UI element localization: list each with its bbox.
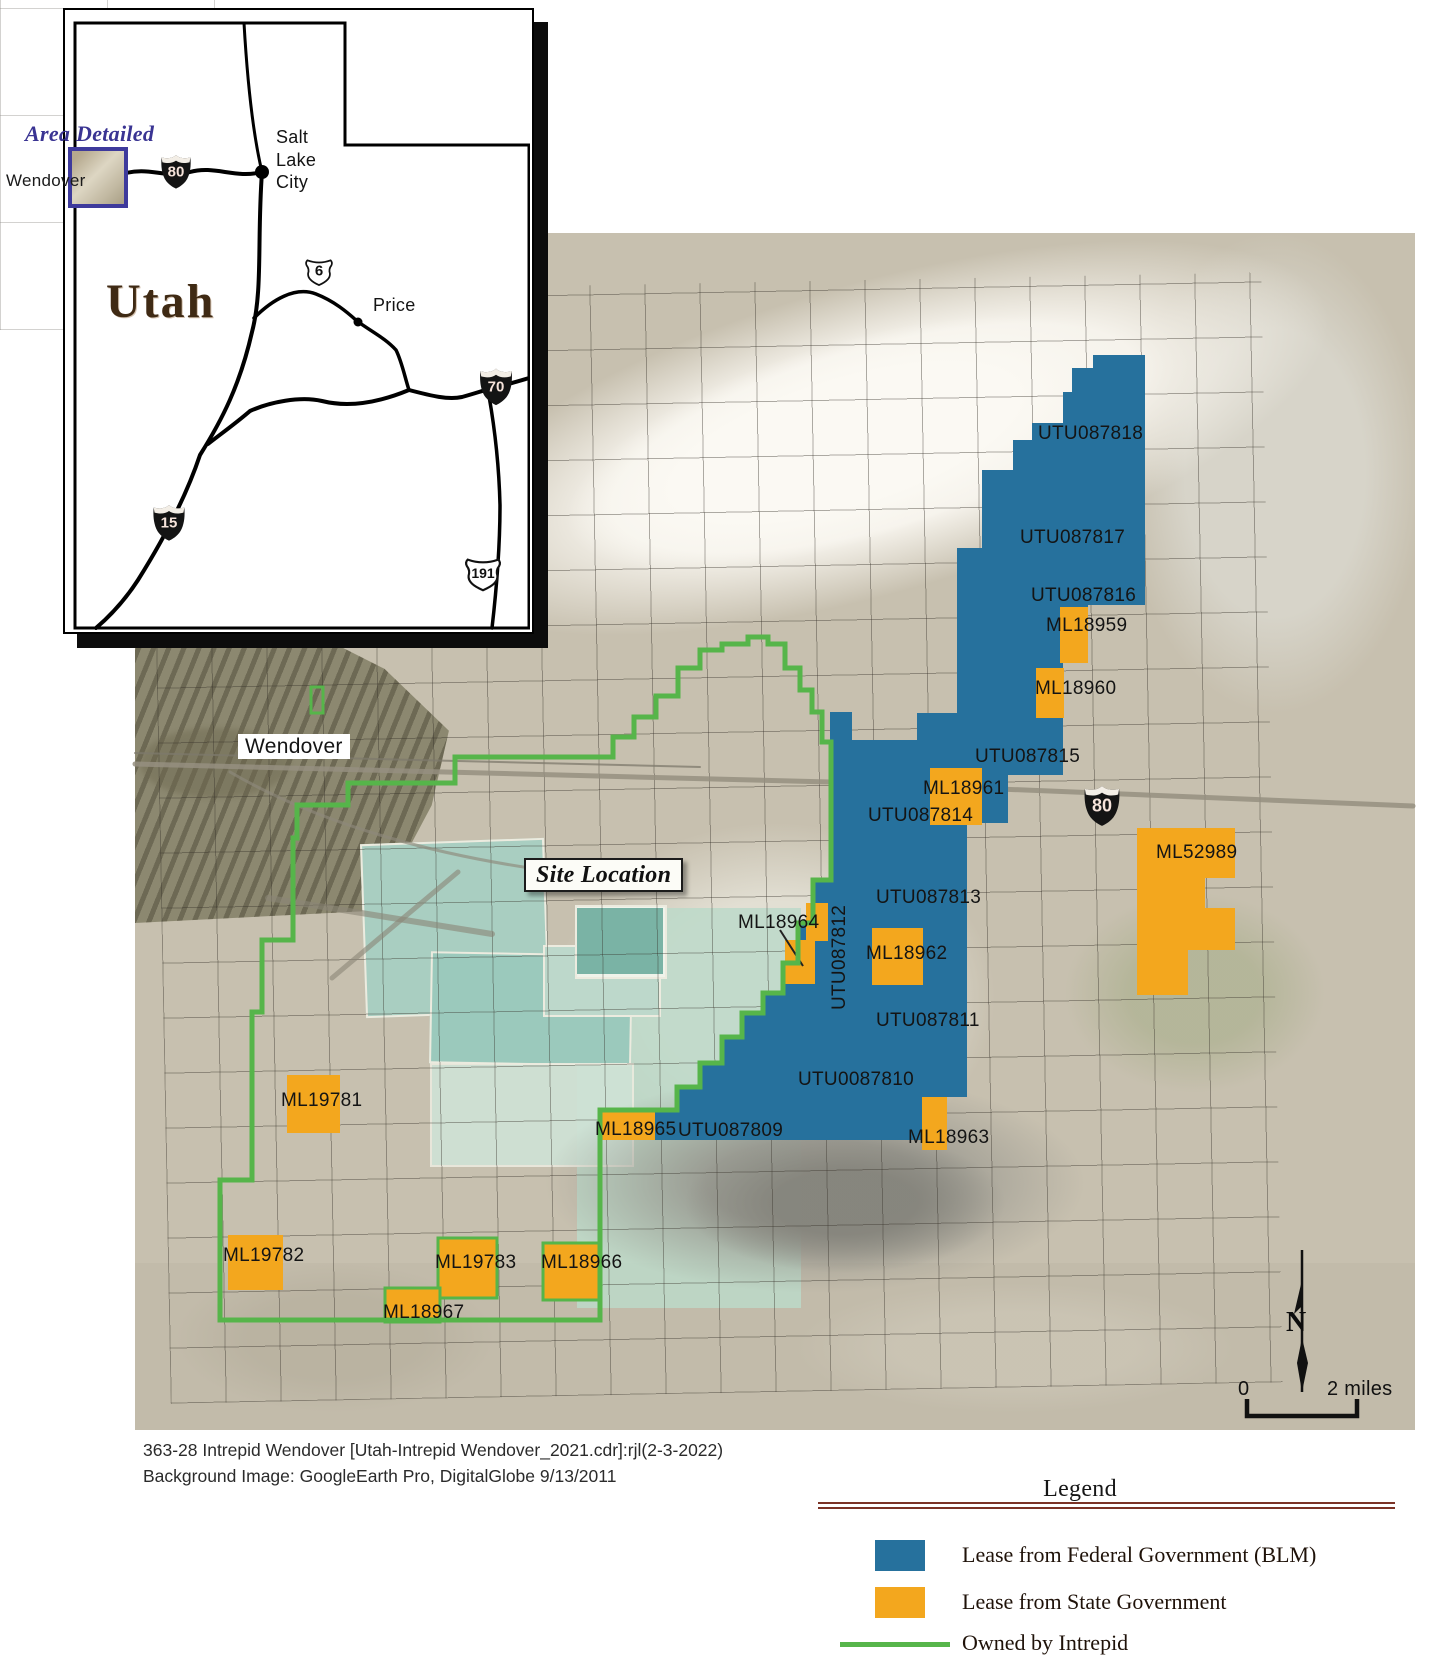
area-detailed-label: Area Detailed — [25, 122, 154, 146]
salt-lake-city-dot — [255, 165, 269, 179]
lease-label: ML18962 — [866, 944, 947, 965]
lease-label: UTU087809 — [678, 1121, 783, 1142]
scale-miles: 2 miles — [1327, 1378, 1392, 1400]
legend-divider — [818, 1502, 1395, 1509]
lease-label: UTU087817 — [1020, 528, 1125, 549]
federal-lease-legend-label: Lease from Federal Government (BLM) — [962, 1542, 1316, 1568]
lease-label: ML19782 — [223, 1246, 304, 1267]
caption-line-2: Background Image: GoogleEarth Pro, Digit… — [143, 1463, 723, 1489]
site-location-label: Site Location — [524, 858, 683, 892]
federal-lease-swatch — [875, 1540, 925, 1571]
scale-zero: 0 — [1238, 1378, 1249, 1400]
us-6-shield-icon: 6 — [303, 254, 335, 290]
lease-label: UTU087818 — [1038, 424, 1143, 445]
wendover-city-label: Wendover — [238, 734, 350, 759]
intrepid-line-swatch — [840, 1642, 950, 1647]
interstate-15-shield-icon: 15 — [152, 502, 186, 542]
lease-label: ML19781 — [281, 1091, 362, 1112]
caption-line-1: 363-28 Intrepid Wendover [Utah-Intrepid … — [143, 1437, 723, 1463]
lease-label: ML18963 — [908, 1128, 989, 1149]
lease-label: ML18966 — [541, 1253, 622, 1274]
inset-price-label: Price — [373, 296, 416, 316]
state-lease-legend-label: Lease from State Government — [962, 1589, 1227, 1615]
north-label: N — [1286, 1308, 1307, 1339]
inset-wendover-label: Wendover — [6, 172, 86, 191]
lease-label: UTU087811 — [876, 1011, 980, 1032]
lease-label: UTU087812 — [830, 905, 851, 1010]
price-dot — [354, 318, 363, 327]
inset-slc-label: Salt Lake City — [276, 126, 332, 194]
lease-label: ML18960 — [1035, 679, 1116, 700]
lease-label: ML18961 — [923, 779, 1004, 800]
lease-label: UTU087814 — [868, 806, 973, 827]
lease-label: ML52989 — [1156, 843, 1237, 864]
page: { "inset": { "area_detailed": "Area Deta… — [0, 0, 1429, 1666]
state-lease-swatch — [875, 1587, 925, 1618]
lease-label: UTU087815 — [975, 747, 1080, 768]
us-191-shield-icon: 191 — [461, 556, 505, 592]
lease-label: UTU087816 — [1031, 586, 1136, 607]
lease-label: UTU0087810 — [798, 1070, 914, 1091]
interstate-80-shield-icon: 80 — [160, 152, 192, 190]
inset-state-label: Utah — [106, 276, 215, 329]
figure-caption: 363-28 Intrepid Wendover [Utah-Intrepid … — [143, 1437, 723, 1490]
lease-label: ML18965 — [595, 1120, 676, 1141]
legend-title: Legend — [1040, 1476, 1120, 1502]
lease-label: ML18964 — [738, 913, 819, 934]
lease-label: ML19783 — [435, 1253, 516, 1274]
intrepid-legend-label: Owned by Intrepid — [962, 1630, 1128, 1656]
interstate-80-shield-icon: 80 — [1083, 782, 1121, 828]
lease-label: ML18959 — [1046, 616, 1127, 637]
lease-label: UTU087813 — [876, 888, 981, 909]
interstate-70-shield-icon: 70 — [478, 366, 514, 406]
lease-label: ML18967 — [383, 1303, 464, 1324]
